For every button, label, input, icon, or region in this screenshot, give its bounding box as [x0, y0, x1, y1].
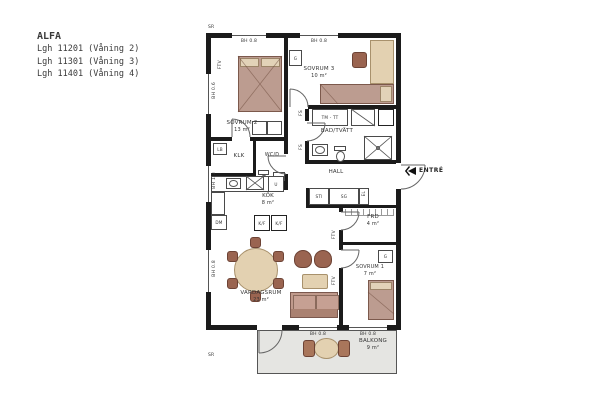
dining-chair-3	[273, 251, 284, 262]
sg-label: SG	[341, 194, 347, 199]
wcd-name: WC/D	[256, 152, 288, 159]
armchair-1	[294, 250, 312, 268]
frd-area: 4 m²	[352, 221, 394, 228]
kok-name: KÖK	[250, 193, 286, 200]
wall-sovrum2-right	[284, 38, 288, 141]
tv-outlet-label-2: FTV	[332, 230, 338, 239]
sovrum1-pillow	[370, 282, 392, 290]
entrance-door-opening	[396, 163, 401, 189]
downpipe-label-top: SR	[208, 25, 214, 31]
wall-bath-left-lower	[305, 141, 309, 160]
sti-label: STI	[315, 194, 322, 199]
wall-closet-bottom	[306, 205, 396, 208]
fridge-freezer-2: K/F	[271, 215, 287, 231]
tv-outlet-label-3: FTV	[332, 276, 338, 285]
room-label-wcd: WC/D	[256, 152, 288, 159]
vent-label-2: FS	[299, 144, 305, 150]
bath-cabinet	[378, 109, 394, 126]
room-label-kok: KÖK 8 m²	[250, 193, 286, 207]
sovrum2-pillow-left	[240, 58, 259, 67]
balcony-table	[314, 338, 339, 359]
dining-chair-1	[250, 237, 261, 248]
sofa-back	[291, 309, 337, 317]
kok-area: 8 m²	[250, 200, 286, 207]
sofa	[290, 292, 338, 318]
stove-hob	[246, 176, 264, 190]
kitchen-counter-left	[211, 192, 225, 215]
wall-frd-left-lower	[339, 230, 343, 250]
badtvatt-name: BAD/TVÄTT	[306, 128, 368, 135]
window-vardagsrum-left	[206, 250, 211, 292]
el-label: EL	[361, 191, 367, 196]
sovrum2-wardrobe-2	[267, 121, 282, 135]
window-sovrum2-left	[206, 74, 211, 114]
dishwasher: DM	[211, 215, 227, 230]
sovrum3-wardrobe: G	[289, 50, 302, 66]
window-height-top-2: BH 0.8	[300, 39, 338, 45]
bath-toilet-bowl	[336, 151, 345, 162]
balkong-area: 9 m²	[350, 345, 396, 352]
sovrum3-desk	[370, 40, 394, 84]
sovrum2-name: SOVRUM 2	[216, 120, 268, 127]
washer-dryer-label: TM - TT	[322, 115, 339, 120]
tv-outlet-label-1: FTV	[218, 60, 224, 69]
room-label-hall: HALL	[306, 169, 366, 176]
bath-sink-basin	[315, 146, 325, 154]
sovrum1-wardrobe: G	[378, 250, 393, 263]
sovrum1-name: SOVRUM 1	[345, 264, 395, 271]
oven-label: U	[274, 182, 277, 187]
balcony-chair-left	[303, 340, 315, 357]
title-block: ALFA Lgh 11201 (Våning 2) Lgh 11301 (Vån…	[37, 30, 139, 81]
shower-drain	[376, 146, 380, 150]
window-height-left-2: BH 1.3	[212, 172, 218, 189]
room-label-frd: FRD 4 m²	[352, 214, 394, 228]
entrance-label: ENTRÉ	[419, 167, 443, 174]
entrance-arrow-icon	[405, 165, 417, 177]
floorplan: G TM - TT LB U DM K/F K/F STI SG EL G	[202, 24, 457, 394]
hall-name: HALL	[306, 169, 366, 176]
unit-line-1: Lgh 11201 (Våning 2)	[37, 43, 139, 56]
unit-line-3: Lgh 11401 (Våning 4)	[37, 68, 139, 81]
oven-unit: U	[268, 176, 284, 192]
armchair-2	[314, 250, 332, 268]
window-height-bottom-1: BH 0.8	[299, 332, 337, 338]
room-label-sovrum2: SOVRUM 2 13 m²	[216, 120, 268, 134]
unit-line-2: Lgh 11301 (Våning 3)	[37, 56, 139, 69]
dining-table	[234, 248, 278, 292]
floorplan-page: { "title_block": { "name": "ALFA", "unit…	[0, 0, 600, 400]
sovrum2-area: 13 m²	[216, 127, 268, 134]
frd-name: FRD	[352, 214, 394, 221]
window-sovrum3-top	[300, 33, 338, 38]
wall-frd-left-upper	[339, 204, 343, 212]
sofa-cushion-1	[293, 295, 316, 310]
room-label-balkong: BALKONG 9 m²	[350, 338, 396, 352]
sovrum3-area: 10 m²	[290, 73, 348, 80]
closet-sg: SG	[329, 188, 359, 205]
window-sovrum2-top	[232, 33, 266, 38]
sovrum3-pillow	[380, 86, 392, 102]
lb-label: LB	[217, 147, 223, 152]
fridge-freezer-1: K/F	[254, 215, 270, 231]
dining-chair-6	[273, 278, 284, 289]
sovrum2-pillow-right	[261, 58, 280, 67]
room-label-vardagsrum: VARDAGSRUM 23 m²	[230, 290, 292, 304]
plan-title: ALFA	[37, 30, 139, 43]
room-label-sovrum1: SOVRUM 1 7 m²	[345, 264, 395, 278]
sovrum1-area: 7 m²	[345, 271, 395, 278]
wall-bath-bottom	[305, 160, 396, 164]
sovrum3-name: SOVRUM 3	[290, 66, 348, 73]
vardagsrum-area: 23 m²	[230, 297, 292, 304]
window-height-bottom-2: BH 0.8	[349, 332, 387, 338]
dining-chair-4	[227, 251, 238, 262]
kf-label-1: K/F	[258, 221, 265, 226]
window-height-left-3: BH 0.8	[212, 260, 218, 277]
wardrobe-label-2: G	[384, 254, 387, 259]
sofa-cushion-2	[316, 295, 339, 310]
wall-sovrum2-bottom-left	[211, 137, 232, 141]
downpipe-label-bottom: SR	[208, 353, 214, 359]
washer-dryer-unit: TM - TT	[312, 109, 348, 126]
wall-sovrum1-left	[339, 268, 343, 325]
kitchen-sink-basin	[229, 180, 238, 187]
dishwasher-label: DM	[215, 220, 222, 225]
closet-sti: STI	[309, 188, 329, 205]
kf-label-2: K/F	[275, 221, 282, 226]
sovrum3-chair	[352, 52, 367, 68]
window-height-top-1: BH 0.8	[232, 39, 266, 45]
bath-bench	[351, 109, 375, 126]
wall-frd-sovrum1	[343, 242, 396, 245]
balcony-chair-right	[338, 340, 350, 357]
room-label-sovrum3: SOVRUM 3 10 m²	[290, 66, 348, 80]
coffee-table	[302, 274, 328, 289]
room-label-badtvatt: BAD/TVÄTT	[306, 128, 368, 135]
window-height-left-1: BH 0.6	[212, 82, 218, 99]
vent-label-1: FS	[299, 110, 305, 116]
vardagsrum-name: VARDAGSRUM	[230, 290, 292, 297]
wall-bath-left-upper	[305, 109, 309, 121]
balkong-name: BALKONG	[350, 338, 396, 345]
wardrobe-label: G	[294, 56, 297, 61]
dining-chair-5	[227, 278, 238, 289]
